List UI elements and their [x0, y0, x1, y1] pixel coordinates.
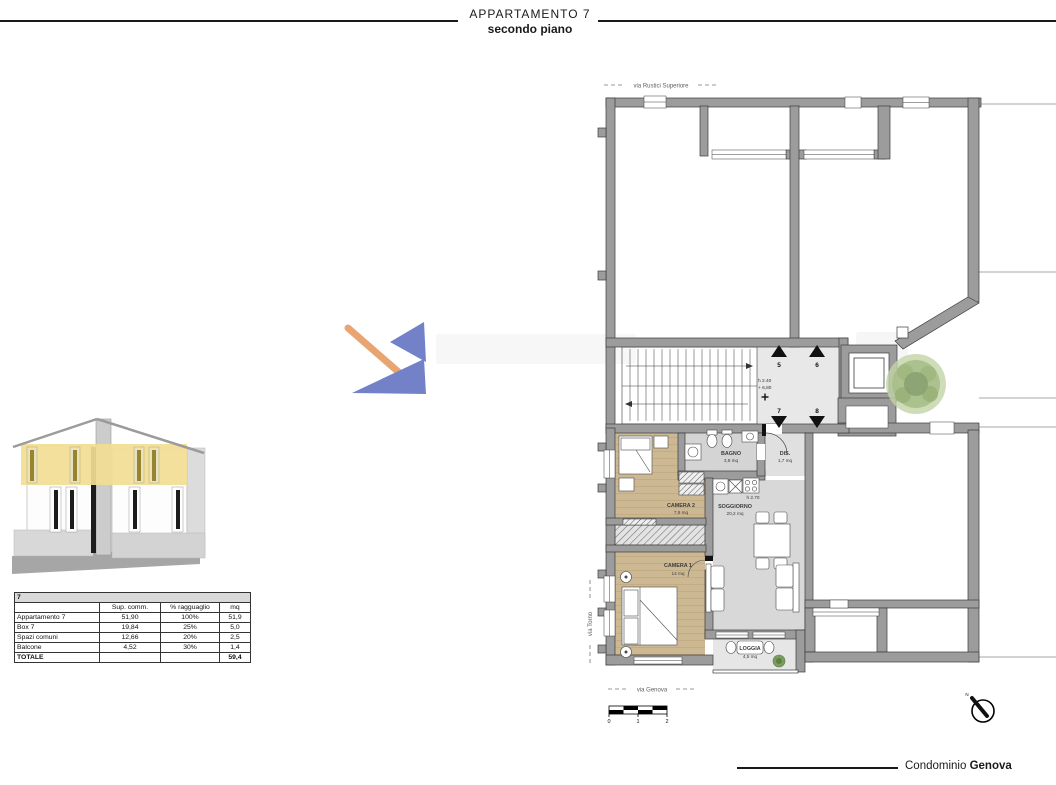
chair	[756, 512, 769, 523]
radiator	[623, 519, 656, 525]
toilet	[707, 435, 717, 448]
bidet	[722, 435, 732, 448]
pillow	[624, 590, 638, 616]
wardrobe	[679, 472, 704, 483]
scale-tick-1: 1	[636, 719, 639, 725]
loggia-area: 4,5 mq	[743, 654, 758, 659]
drawing-canvas: via Rustici Superiore via Genova via Tor…	[0, 0, 1056, 785]
sheet: APPARTAMENTO 7 secondo piano Condominio …	[0, 0, 1056, 785]
dining-table	[754, 524, 790, 557]
unit-number-7: 7	[777, 408, 781, 415]
context-lines	[979, 104, 1056, 657]
sofa-cushion	[776, 565, 793, 587]
unit-number-8: 8	[815, 408, 819, 415]
chair	[774, 512, 787, 523]
sofa-back	[706, 564, 711, 612]
camera1-door-leaf	[705, 556, 713, 561]
sofa-cushion	[776, 588, 793, 610]
service-room	[846, 406, 888, 428]
landing-quota-note: + 6,80	[758, 385, 772, 391]
diagonal-wall	[895, 297, 979, 349]
unit-number-6: 6	[815, 362, 819, 369]
chair	[756, 558, 769, 569]
stove	[743, 478, 759, 493]
camera2-area: 7,9 mq	[674, 510, 689, 515]
pillow	[624, 618, 638, 644]
stair-arrow-down	[625, 401, 632, 407]
floor-highlight-band	[21, 444, 187, 485]
bagno-label: BAGNO	[721, 451, 741, 457]
washbasin-bowl	[747, 433, 754, 440]
unit-number-5: 5	[777, 362, 781, 369]
desk	[654, 436, 668, 448]
scale-tick-0: 0	[607, 719, 610, 725]
street-label-left: via Torno	[588, 611, 594, 636]
bidet-tap	[722, 430, 732, 434]
entrance-door-leaf	[762, 424, 766, 436]
scale-tick-2: 2	[665, 719, 668, 725]
soggiorno-height: h 2.70	[746, 495, 759, 500]
courtyard-tree	[886, 354, 946, 414]
street-label-top: via Rustici Superiore	[633, 84, 689, 90]
soggiorno-label: SOGGIORNO	[718, 504, 752, 510]
stair-arrow-up	[746, 363, 753, 369]
sofa-back	[793, 563, 799, 612]
wardrobe	[679, 484, 704, 495]
camera1-label: CAMERA 1	[664, 563, 692, 569]
loggia-chair	[764, 642, 774, 654]
scale-bar: 0 1 2	[607, 706, 668, 725]
sofa-cushion	[711, 589, 724, 611]
bagno-area: 3,8 mq	[724, 458, 739, 463]
kitchen-sink-bowl	[716, 482, 725, 491]
dis-label: DIS.	[780, 451, 791, 457]
staircase	[622, 347, 757, 424]
laundry-sink-bowl	[688, 447, 698, 457]
logo-blue-triangle-top	[390, 322, 426, 362]
building-elevation	[12, 419, 205, 574]
camera2-label: CAMERA 2	[667, 503, 695, 509]
nightstand	[619, 478, 634, 491]
loggia-label: LOGGIA	[739, 646, 760, 652]
roof-line-left	[13, 419, 97, 447]
floor-plan: via Rustici Superiore via Genova via Tor…	[588, 84, 1056, 726]
camera1-area: 14 mq	[671, 571, 684, 576]
balcone-deck	[615, 525, 705, 545]
dis-area: 1,7 mq	[778, 458, 793, 463]
compass-icon: N	[965, 692, 994, 722]
sofa-cushion	[711, 566, 724, 588]
soggiorno-area: 20,2 mq	[727, 511, 744, 516]
elevation-center-column	[96, 419, 111, 555]
loggia-chair	[726, 642, 736, 654]
street-label-bottom: via Genova	[637, 688, 668, 694]
loggia-parapet	[713, 670, 798, 673]
north-label: N	[965, 692, 968, 697]
elevator	[849, 353, 889, 393]
landing-height-note: h 2.40	[758, 378, 772, 384]
